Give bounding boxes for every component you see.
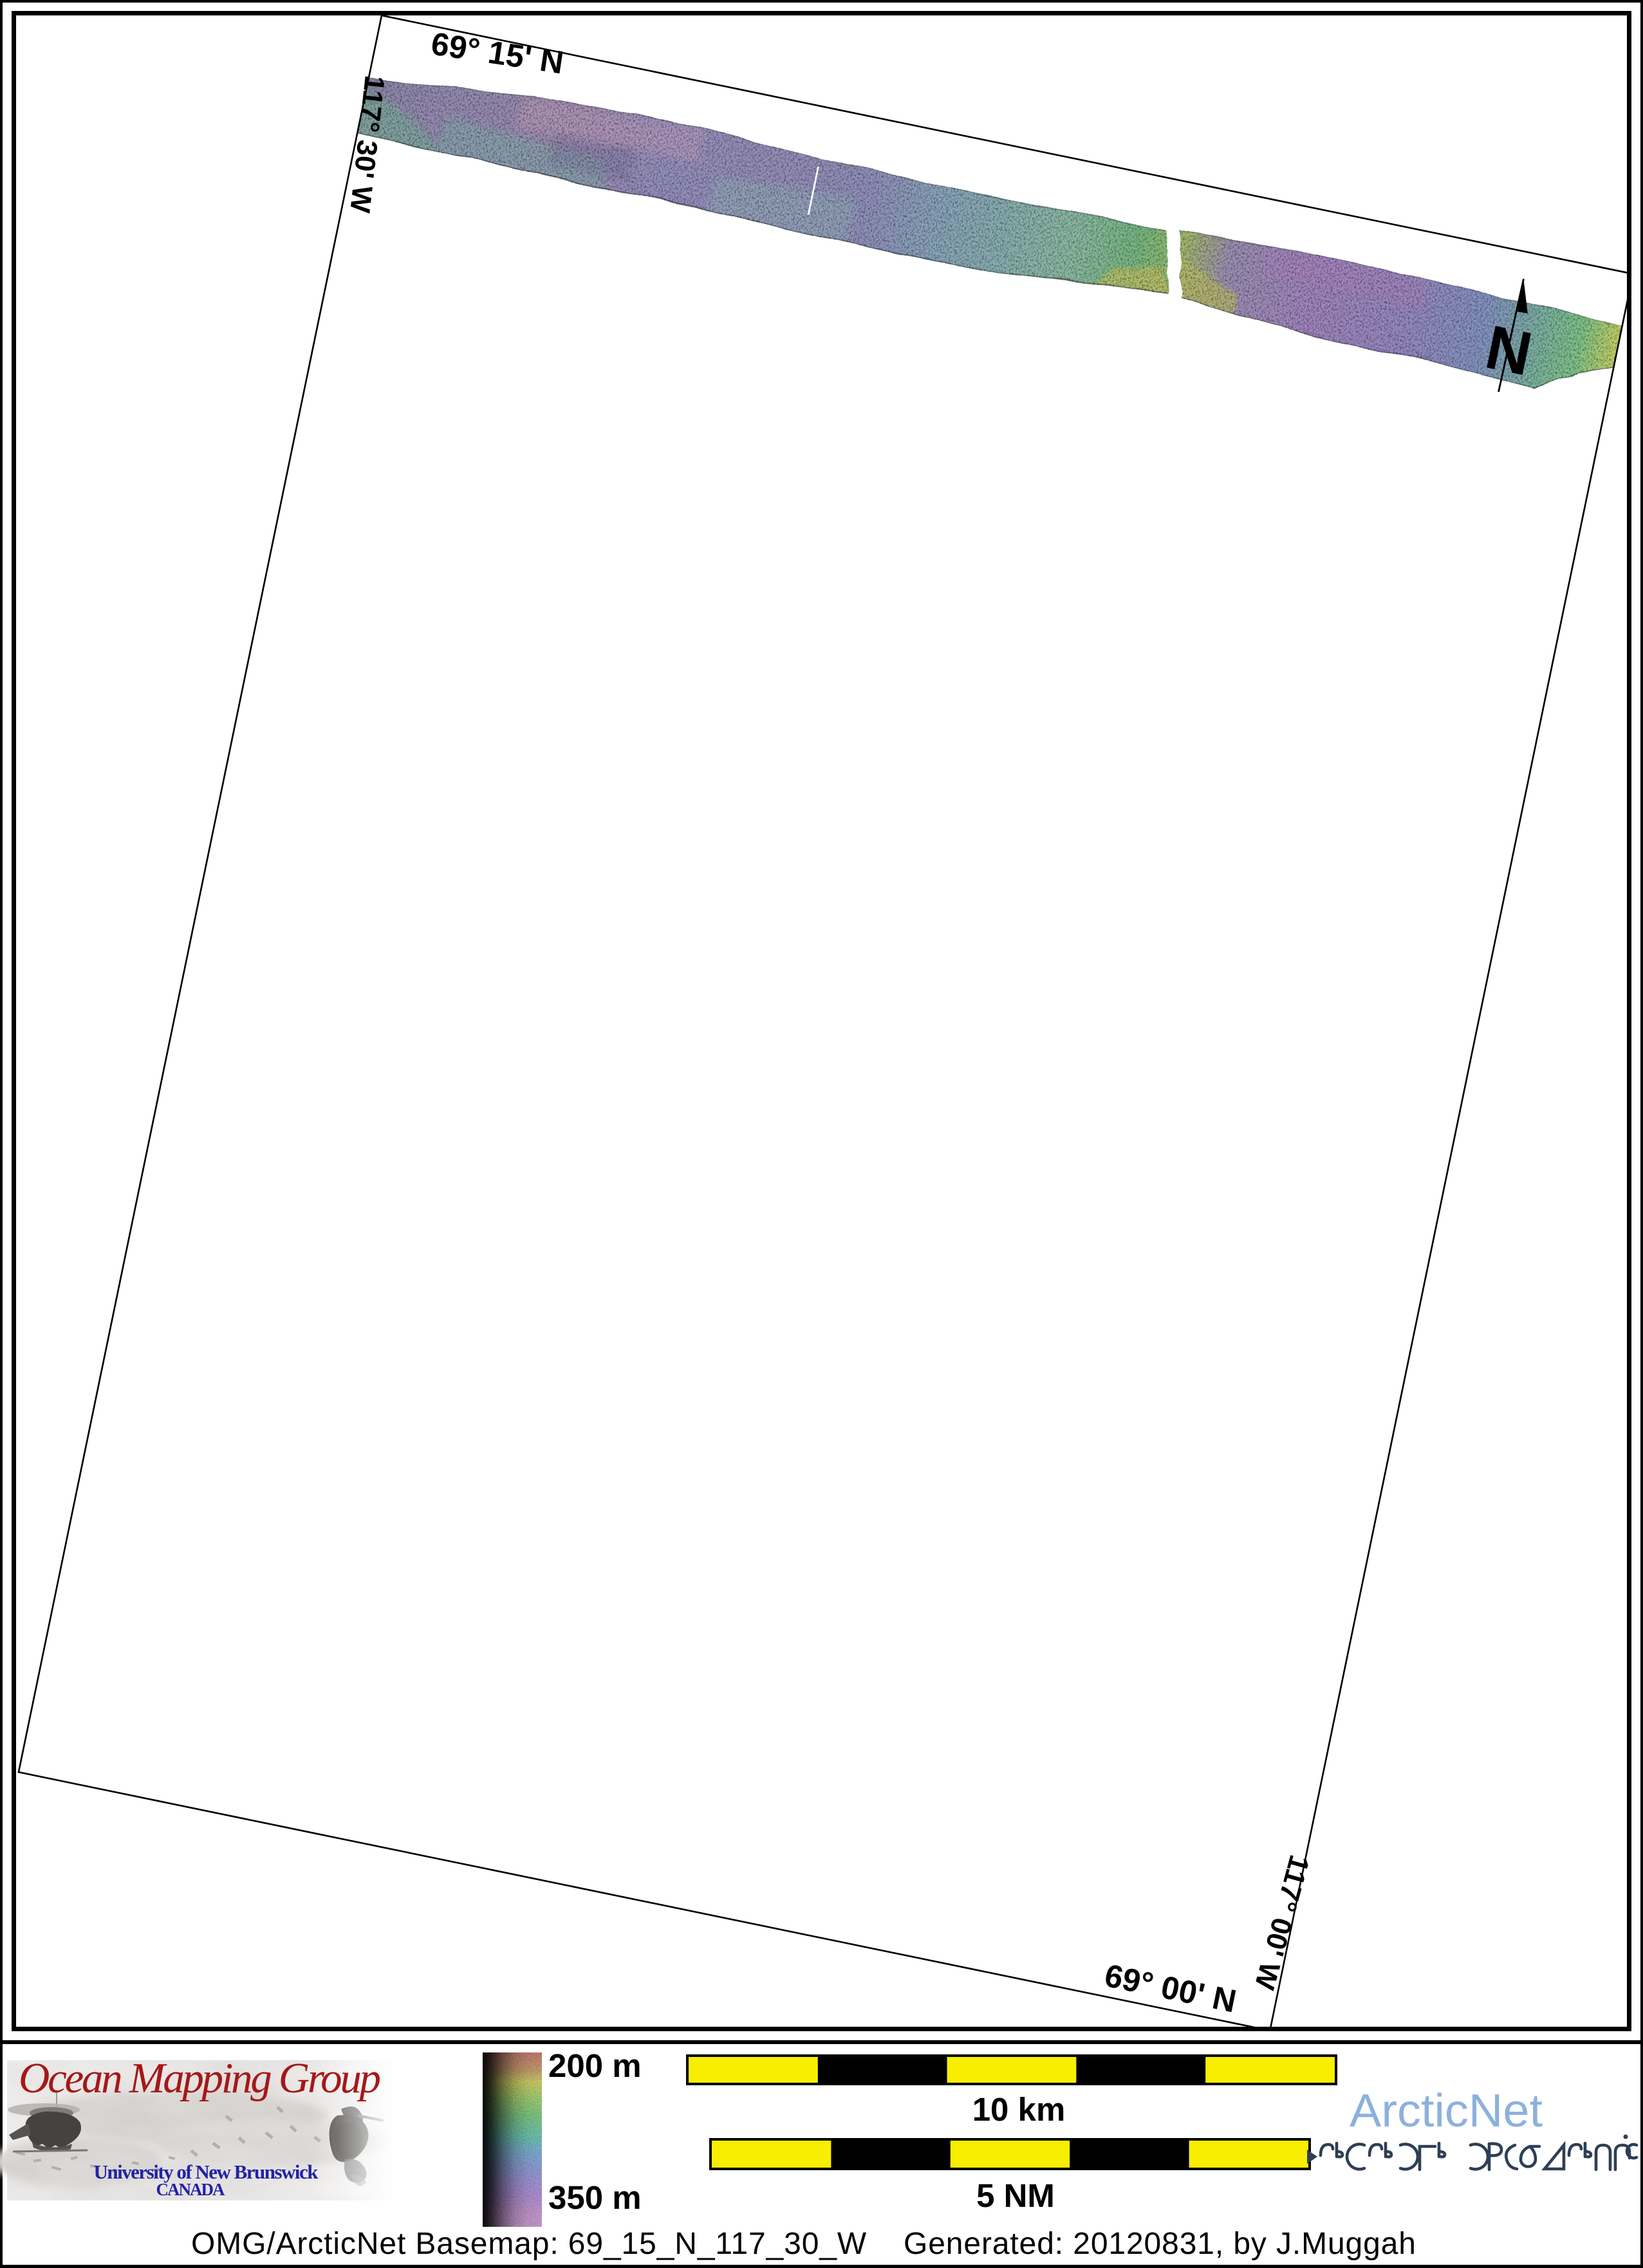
svg-text:Ocean Mapping Group: Ocean Mapping Group bbox=[19, 2054, 381, 2102]
svg-text:10 km: 10 km bbox=[972, 2091, 1066, 2128]
svg-text:5 NM: 5 NM bbox=[976, 2177, 1055, 2214]
svg-text:ArcticNet: ArcticNet bbox=[1350, 2085, 1543, 2137]
svg-text:200 m: 200 m bbox=[548, 2047, 642, 2084]
svg-text:350 m: 350 m bbox=[548, 2179, 642, 2216]
svg-text:OMG/ArcticNet Basemap: 69_15_N: OMG/ArcticNet Basemap: 69_15_N_117_30_W … bbox=[191, 2227, 1416, 2261]
svg-text:CANADA: CANADA bbox=[156, 2180, 226, 2199]
